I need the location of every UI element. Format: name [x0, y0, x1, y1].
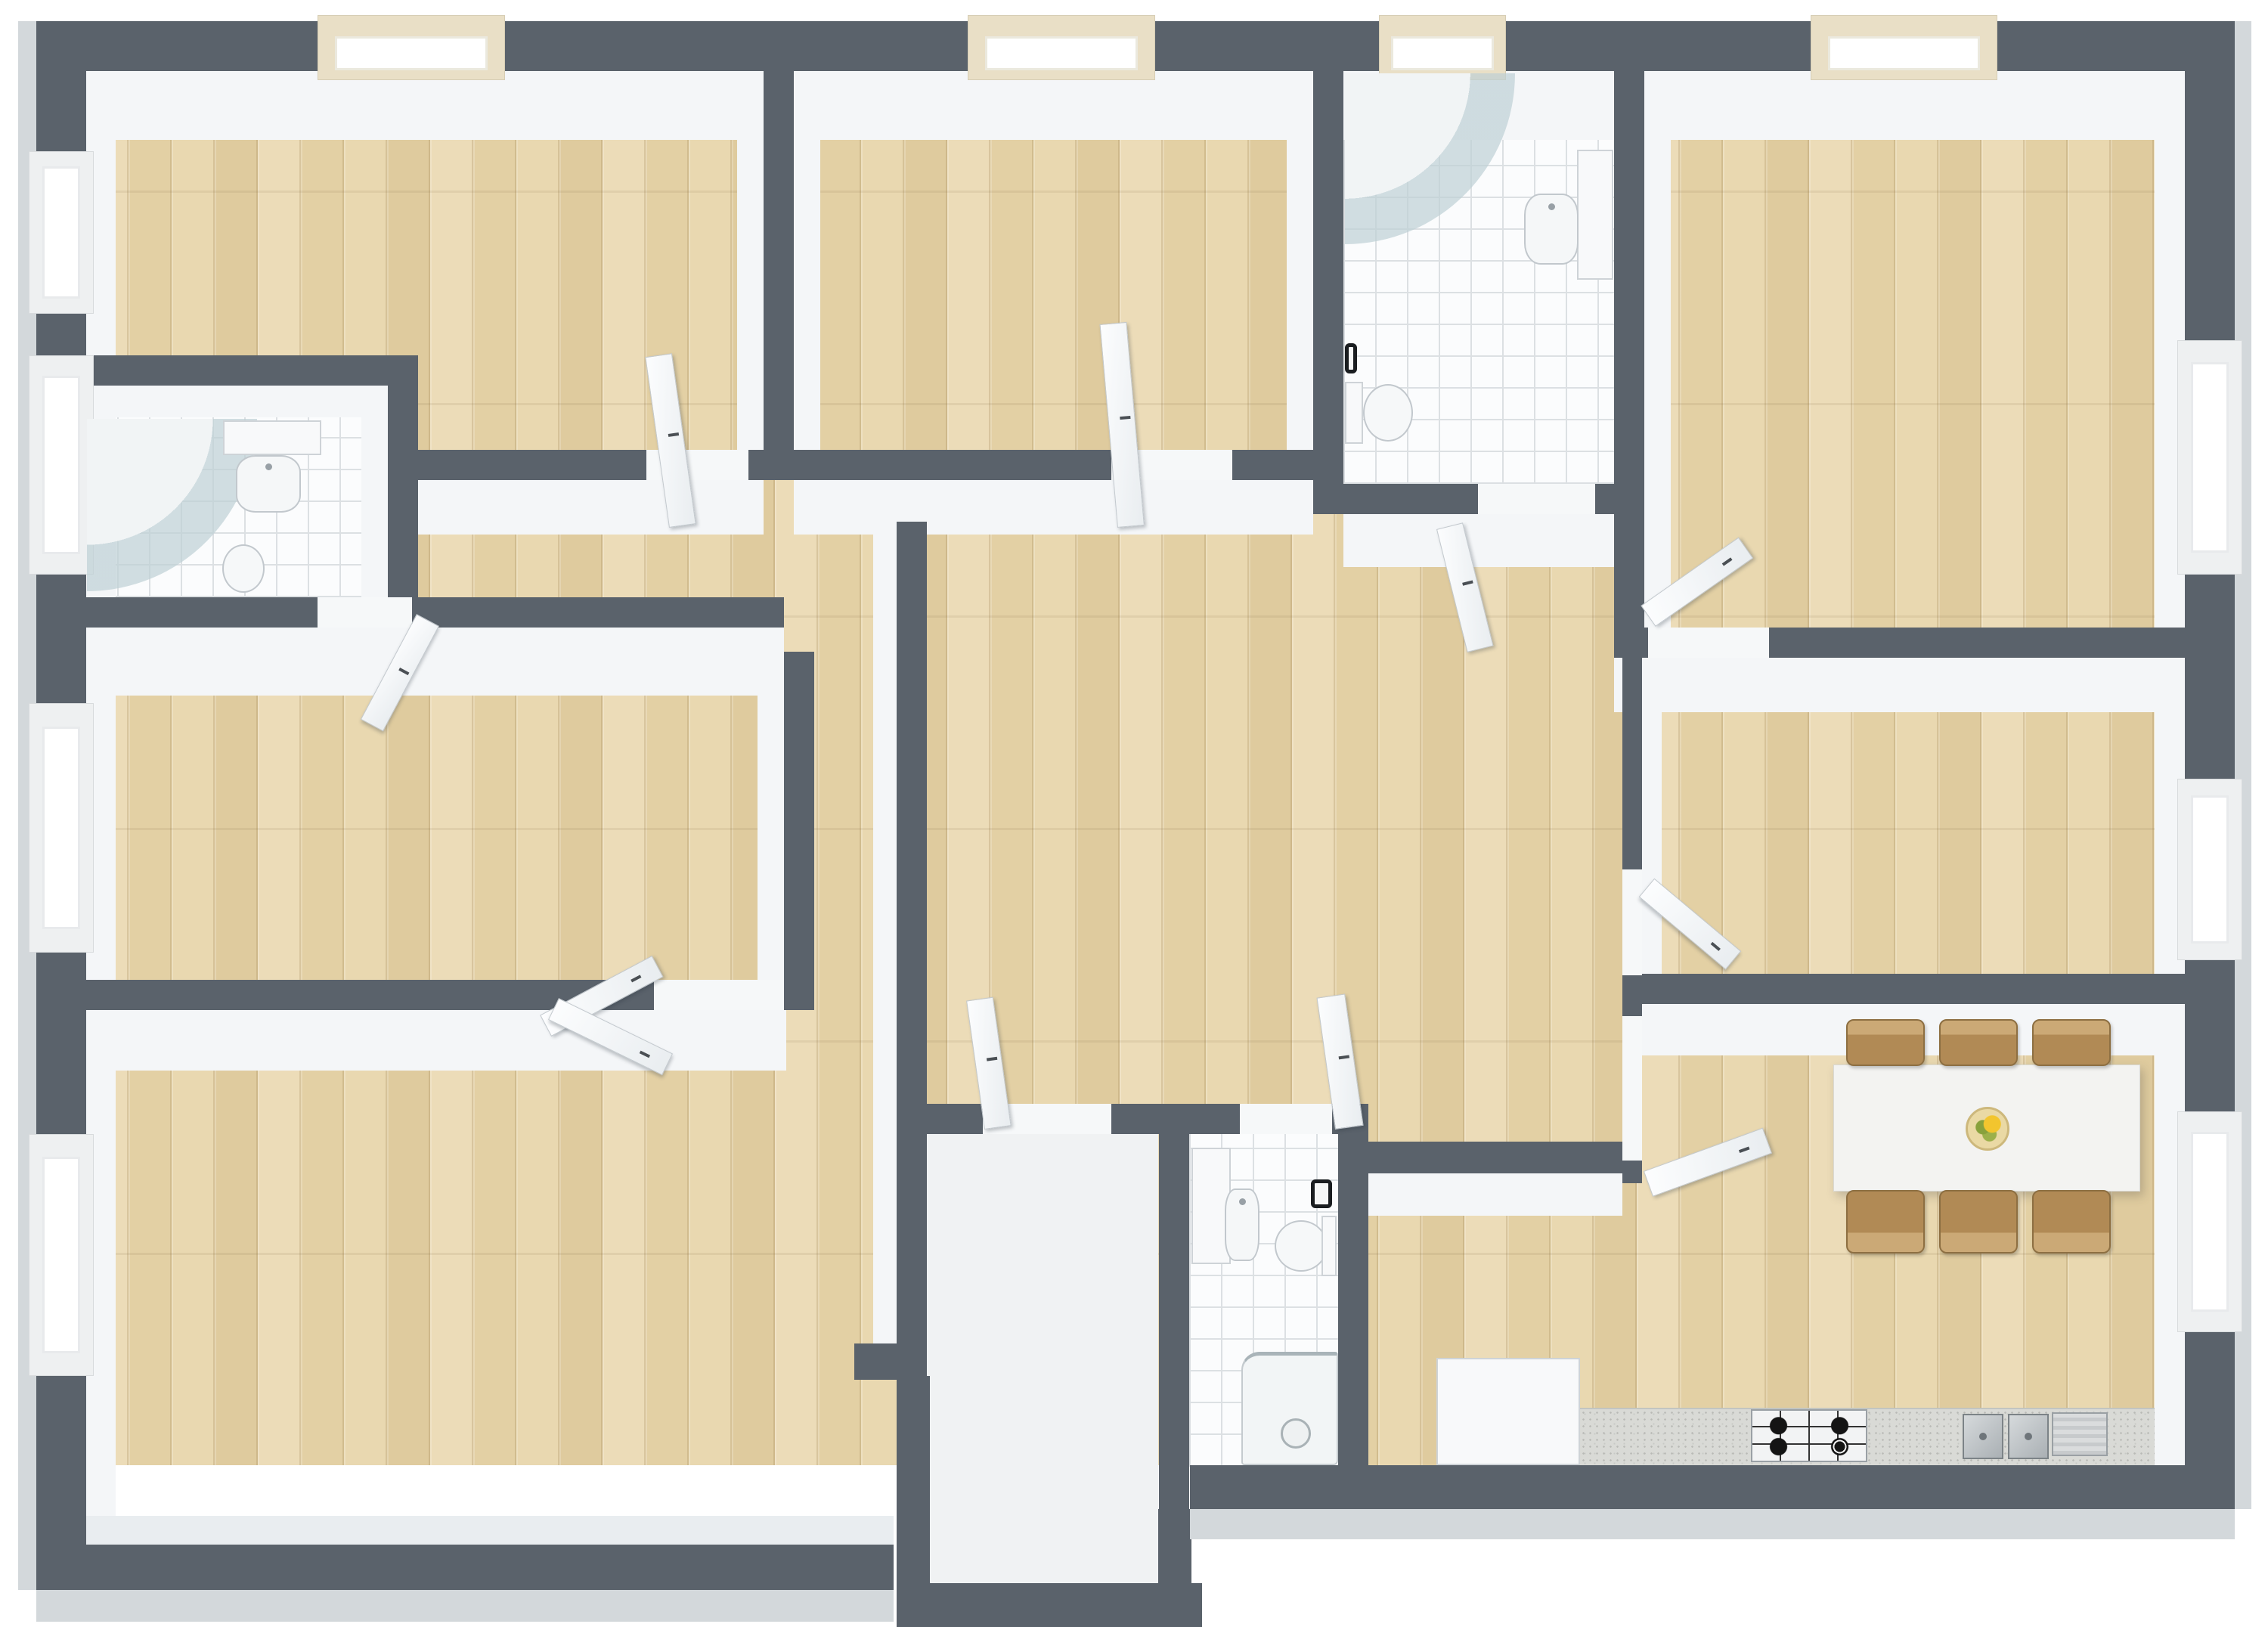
dining-chair-bottom-3: [2032, 1190, 2111, 1254]
wall-divider-bath-tr: [1614, 70, 1644, 628]
wallface-dk-left-top: [1338, 1173, 1622, 1216]
window-left-bedroom-bl: [29, 1134, 94, 1376]
sink-counter-bathroom-left: [223, 420, 321, 455]
wall-exterior-bottom-kitchen: [1190, 1465, 2235, 1509]
window-left-room-middle: [29, 703, 94, 953]
window-top-bathroom: [1379, 15, 1506, 80]
toilet-tank-bathroom-bottom: [1321, 1216, 1337, 1276]
toilet-bathroom-left: [222, 544, 265, 593]
fruit-bowl: [1966, 1107, 2009, 1151]
wall-divider-tm-bath: [1313, 70, 1343, 484]
dining-chair-top-1: [1846, 1019, 1925, 1066]
wall-mr-left-a: [1622, 658, 1642, 869]
wall-dk-left-stub: [1622, 1161, 1642, 1183]
threshold-bathroom-bottom: [1240, 1104, 1332, 1134]
dining-chair-top-2: [1939, 1019, 2018, 1066]
wall-exterior-bottom-left: [36, 1545, 894, 1590]
window-right-room-middle: [2177, 779, 2242, 960]
outer-bottom-left: [36, 1590, 894, 1622]
wall-tm-bottom-b: [1232, 450, 1313, 480]
wall-mr-left-b: [1622, 975, 1642, 1016]
flush-plate-bathroom-bottom: [1311, 1179, 1332, 1208]
shower-head-bathroom-bottom: [1281, 1418, 1311, 1449]
wall-tl-bottom-a: [418, 450, 646, 480]
wall-bathb-right: [1338, 1104, 1368, 1465]
wallface-ml-right: [758, 652, 784, 980]
window-top-bedroom-left: [318, 15, 505, 80]
toilet-bathroom-top: [1363, 384, 1413, 442]
wall-vest-top-a: [927, 1104, 983, 1134]
wallface-tl-right: [737, 70, 764, 450]
threshold-dining-kitchen: [1622, 1016, 1642, 1161]
wall-corner-bottom-left: [854, 1343, 900, 1380]
wallface-bl-top: [85, 1010, 786, 1071]
threshold-ml-bl: [654, 980, 784, 1010]
window-top-bedroom-right: [1811, 15, 1997, 80]
shower-tray-bathroom-bottom: [1241, 1352, 1338, 1465]
window-right-bedroom-tr: [2177, 340, 2242, 575]
wall-bathleft-top: [85, 355, 388, 386]
dining-chair-bottom-1: [1846, 1190, 1925, 1254]
kitchen-sink-right: [2008, 1414, 2049, 1459]
wall-vestibule-right: [1158, 1509, 1191, 1627]
sink-cabinet-bathroom-top: [1577, 150, 1613, 280]
wall-bathleft-bottom-a: [85, 597, 318, 628]
wallface-top: [85, 70, 2185, 140]
window-left-bedroom-tl: [29, 151, 94, 314]
sink-bathroom-left: [236, 455, 301, 513]
window-left-bathroom: [29, 355, 94, 575]
wall-tr-bottom-b: [1769, 628, 2185, 658]
floor-plan: [0, 0, 2268, 1627]
kitchen-sink-left: [1963, 1414, 2003, 1459]
wallface-tr-left: [1644, 70, 1671, 628]
floor-entrance: [927, 1134, 1158, 1583]
threshold-room-middle-right: [1622, 869, 1642, 975]
wall-tr-bottom-a: [1614, 628, 1648, 658]
wallface-tm-right: [1287, 70, 1313, 450]
wall-corridor-spur: [897, 522, 927, 1376]
stove-cooktop: [1751, 1409, 1867, 1462]
wallface-bl-bottom: [85, 1516, 894, 1545]
wallface-corridor-right: [873, 522, 900, 1376]
threshold-bedroom-top-right: [1648, 628, 1769, 658]
wall-ml-right: [784, 652, 814, 1010]
toilet-bathroom-bottom: [1275, 1220, 1328, 1272]
wallface-midright-top: [1614, 658, 2185, 712]
wall-mr-bottom: [1642, 974, 2185, 1004]
wall-vest-top-b: [1111, 1104, 1159, 1134]
kitchen-drainer: [2052, 1412, 2108, 1456]
wallface-hall-tm: [794, 480, 1313, 535]
wallface-tm-left: [794, 70, 820, 450]
wall-tm-bottom-a: [794, 450, 1111, 480]
refrigerator: [1436, 1358, 1580, 1465]
dining-chair-top-3: [2032, 1019, 2111, 1066]
wallface-midleft-top: [85, 628, 784, 696]
outer-bottom-kitchen: [1190, 1509, 2235, 1539]
wall-divider-tl-tm: [764, 70, 794, 450]
wall-tl-bottom-b: [748, 450, 794, 480]
sink-bathroom-top: [1524, 194, 1579, 265]
wallface-bathleft-top: [85, 386, 388, 417]
wallface-mr-left: [1642, 688, 1662, 974]
wall-bathb-left: [1159, 1104, 1189, 1509]
window-top-bedroom-middle: [968, 15, 1155, 80]
wall-dk-left-top: [1338, 1142, 1622, 1173]
wall-batht-bottom-a: [1313, 484, 1478, 514]
wallface-hall-tl: [418, 480, 764, 535]
sink-bathroom-bottom: [1225, 1188, 1259, 1261]
wallface-bathleft-right: [361, 417, 388, 597]
wallface-hall-bath: [1343, 514, 1614, 567]
wall-bathleft-bottom-b: [412, 597, 784, 628]
wall-bathleft-right: [388, 355, 418, 628]
window-right-dining: [2177, 1111, 2242, 1332]
wall-vestibule-bottom: [897, 1583, 1202, 1627]
toilet-tank-bathroom-top: [1345, 382, 1363, 444]
threshold-bathroom-left: [318, 597, 412, 628]
dining-chair-bottom-2: [1939, 1190, 2018, 1254]
flush-plate-bathroom-top: [1345, 343, 1357, 373]
threshold-bathroom-top: [1478, 484, 1595, 514]
